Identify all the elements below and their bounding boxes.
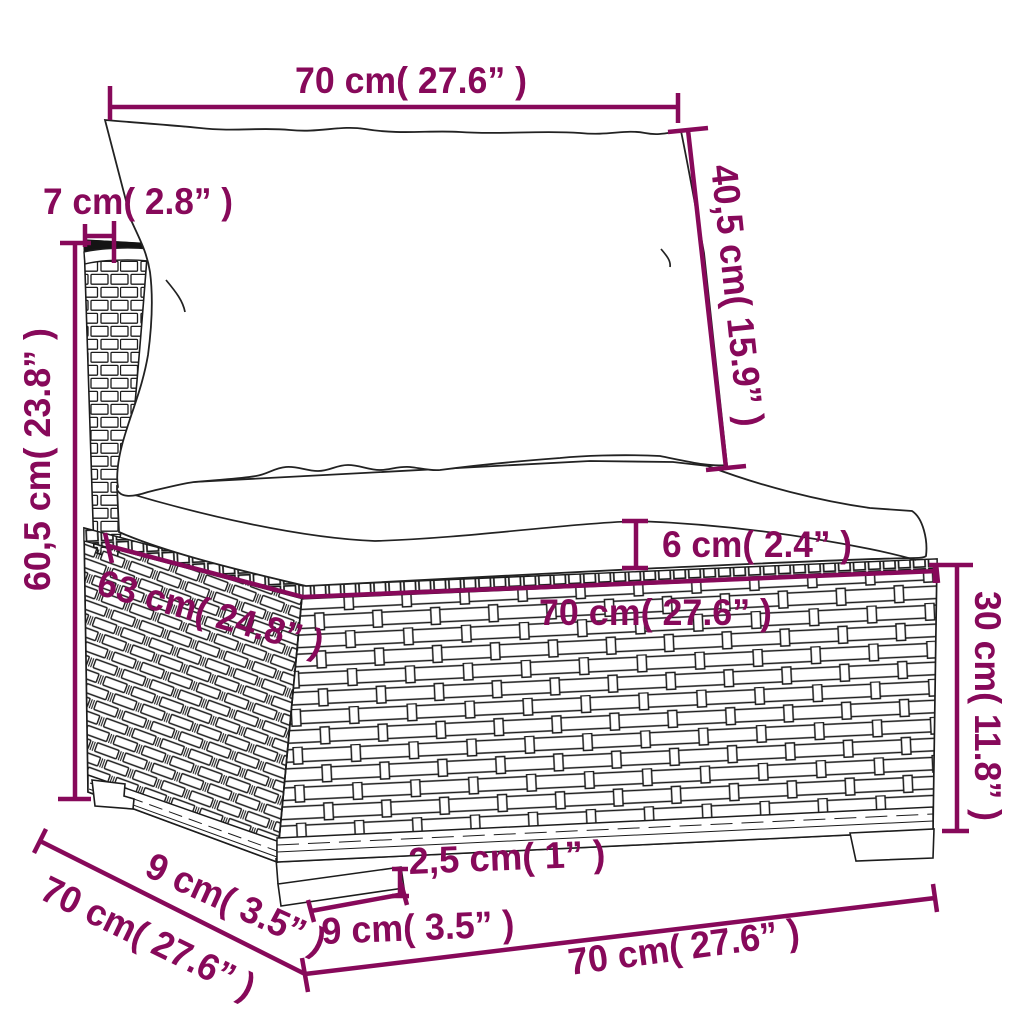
svg-text:60,5 cm( 23.8” ): 60,5 cm( 23.8” ) <box>16 328 58 591</box>
svg-text:2,5 cm( 1” ): 2,5 cm( 1” ) <box>408 832 607 882</box>
svg-text:70 cm( 27.6” ): 70 cm( 27.6” ) <box>539 591 772 633</box>
svg-text:6 cm( 2.4” ): 6 cm( 2.4” ) <box>662 523 852 565</box>
svg-text:70 cm( 27.6” ): 70 cm( 27.6” ) <box>295 59 527 101</box>
svg-text:7 cm( 2.8” ): 7 cm( 2.8” ) <box>43 180 233 222</box>
svg-text:9 cm( 3.5” ): 9 cm( 3.5” ) <box>321 902 516 952</box>
svg-text:30 cm( 11.8” ): 30 cm( 11.8” ) <box>967 591 1009 821</box>
